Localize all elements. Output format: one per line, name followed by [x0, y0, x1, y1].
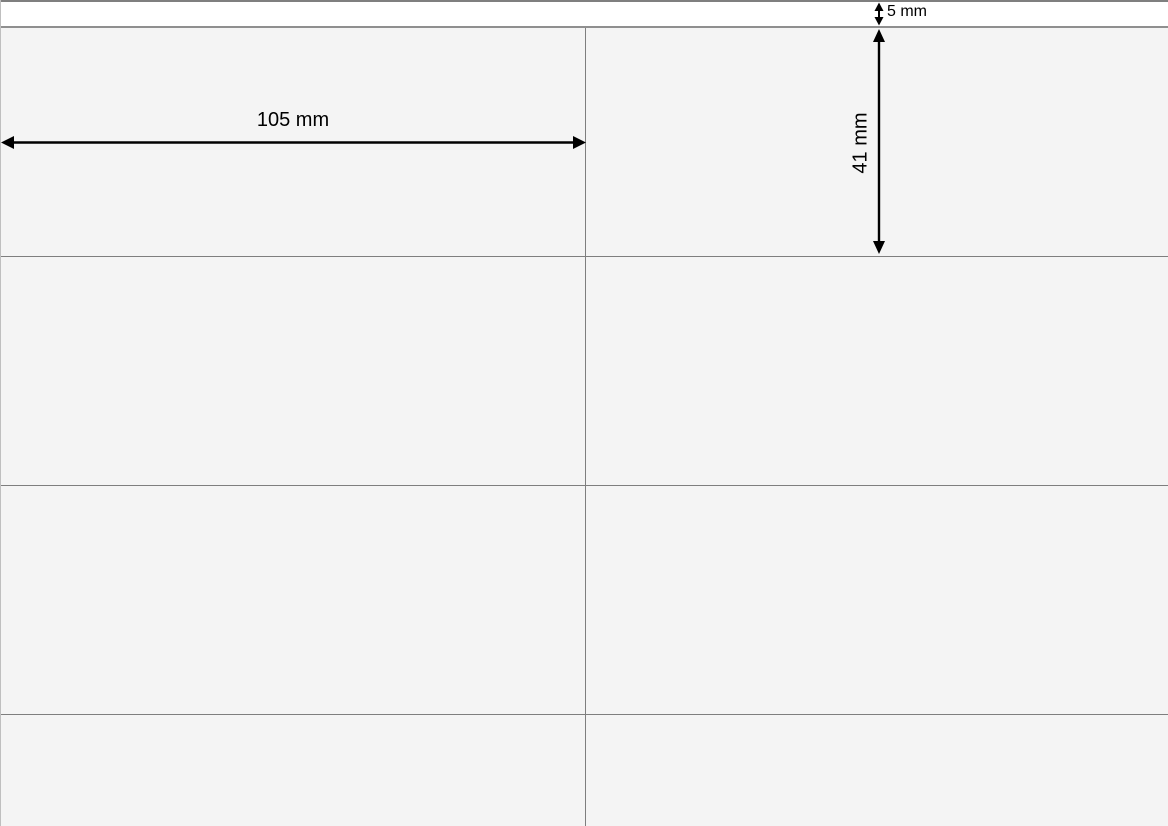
label-sheet-diagram: 105 mm 41 mm 5 mm: [0, 0, 1168, 826]
label-cell: [0, 486, 586, 715]
label-cell: [586, 28, 1168, 257]
label-cell: [0, 257, 586, 486]
sheet-top-margin-strip: [0, 0, 1168, 28]
label-cell: [586, 486, 1168, 715]
label-cell: [586, 715, 1168, 826]
label-grid: [0, 28, 1168, 826]
label-cell: [0, 715, 586, 826]
label-cell: [0, 28, 586, 257]
label-cell: [586, 257, 1168, 486]
sheet-left-edge: [0, 0, 1, 826]
